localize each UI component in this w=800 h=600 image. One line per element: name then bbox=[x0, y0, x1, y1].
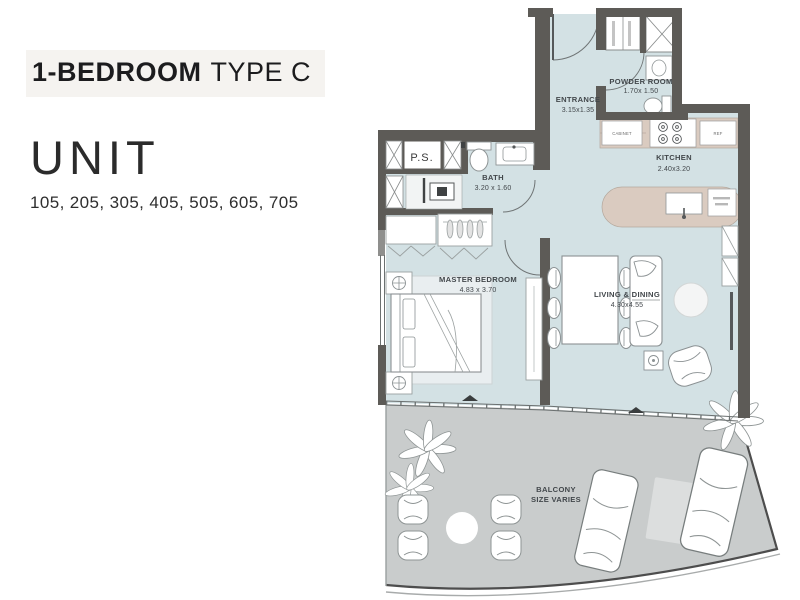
entrance-dims: 3.15x1.35 bbox=[562, 107, 595, 114]
kitchen-label: KITCHEN bbox=[656, 153, 692, 162]
pillow bbox=[403, 337, 415, 367]
balcony-dims: SIZE VARIES bbox=[531, 495, 581, 504]
fridge-label: REF bbox=[714, 131, 723, 136]
entrance-label: ENTRANCE bbox=[556, 95, 601, 104]
label-smudge bbox=[628, 21, 631, 46]
kitchen-dims: 2.40x3.20 bbox=[658, 166, 691, 173]
label-smudge bbox=[715, 203, 728, 205]
dining-chair bbox=[548, 268, 561, 289]
living-dining-label: LIVING & DINING bbox=[594, 290, 660, 299]
cabinet-label: CABINET bbox=[612, 131, 632, 136]
basin-icon bbox=[652, 60, 666, 76]
dining-table bbox=[562, 256, 618, 344]
balcony-chair bbox=[491, 531, 521, 560]
faucet-icon bbox=[512, 145, 515, 148]
wardrobe-box bbox=[386, 216, 436, 244]
toilet-icon bbox=[470, 149, 488, 171]
wardrobe-box bbox=[438, 214, 492, 246]
page: 1-BEDROOMTYPE C UNIT 105, 205, 305, 405,… bbox=[0, 0, 800, 600]
ps-row: P.S. bbox=[386, 141, 461, 169]
toilet-icon bbox=[644, 98, 662, 114]
stove bbox=[650, 119, 696, 147]
floorplan-svg: CABINET REF bbox=[0, 0, 800, 600]
balcony-chair bbox=[491, 495, 521, 524]
balcony bbox=[384, 390, 780, 595]
balcony-chair bbox=[398, 531, 428, 560]
pillow bbox=[403, 299, 415, 329]
label-smudge bbox=[612, 21, 615, 46]
tp-holder-icon bbox=[461, 142, 465, 148]
bath-dims: 3.20 x 1.60 bbox=[475, 185, 512, 192]
balcony-chair bbox=[398, 495, 428, 524]
dining-chair bbox=[548, 328, 561, 349]
island-appliance bbox=[708, 189, 736, 216]
powder-room-label: POWDER ROOM bbox=[609, 77, 672, 86]
round-rug bbox=[674, 283, 708, 317]
master-bedroom-label: MASTER BEDROOM bbox=[439, 275, 517, 284]
shower-mixer-handle bbox=[437, 187, 447, 196]
balcony-round-table bbox=[446, 512, 478, 544]
tv-icon bbox=[730, 292, 733, 350]
powder-room-dims: 1.70x 1.50 bbox=[624, 88, 659, 95]
side-table-icon bbox=[652, 359, 655, 362]
balcony-label: BALCONY bbox=[536, 485, 576, 494]
living-dining-dims: 4.30x4.55 bbox=[611, 302, 644, 309]
dining-chair bbox=[548, 298, 561, 319]
faucet-icon bbox=[682, 215, 686, 219]
basin-icon bbox=[503, 147, 526, 161]
label-smudge bbox=[713, 197, 730, 199]
master-bedroom-dims: 4.83 x 3.70 bbox=[460, 287, 497, 294]
ps-label: P.S. bbox=[410, 152, 433, 164]
bath-label: BATH bbox=[482, 173, 504, 182]
